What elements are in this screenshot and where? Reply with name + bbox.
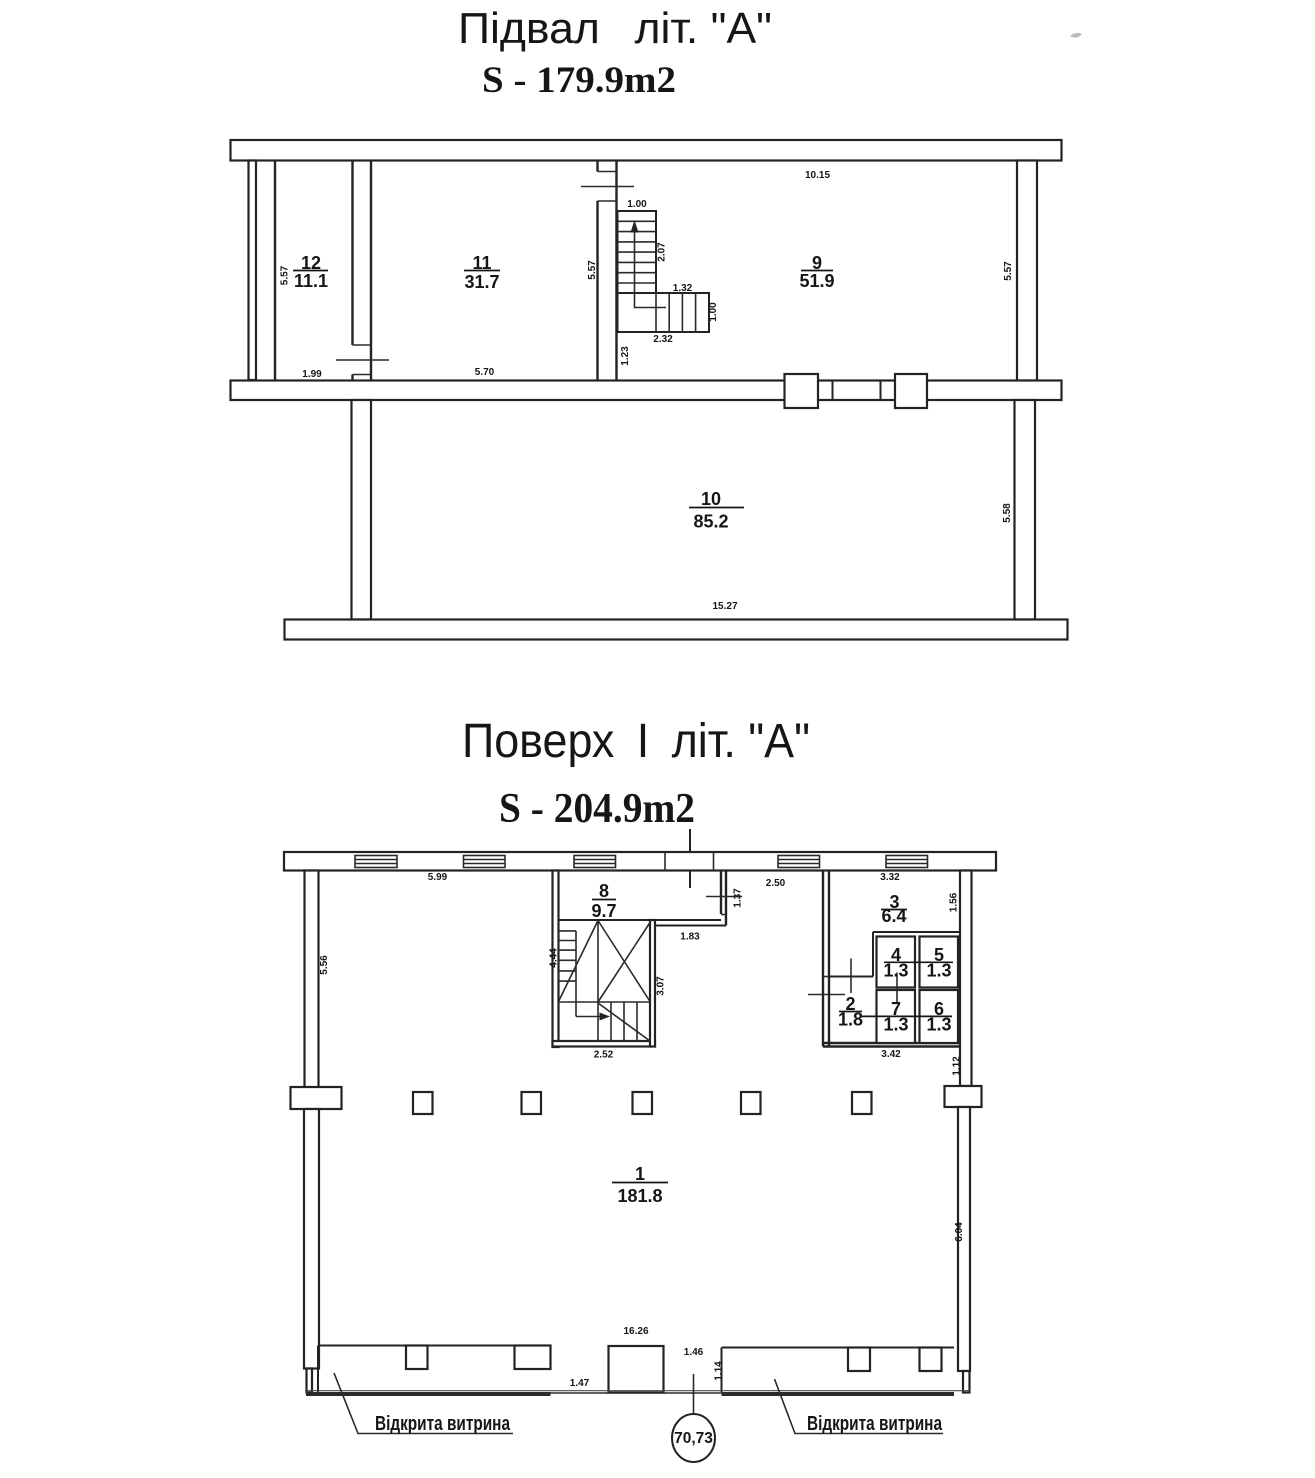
svg-text:70,73: 70,73 — [674, 1430, 713, 1447]
svg-text:5.57: 5.57 — [587, 260, 598, 280]
svg-text:1.3: 1.3 — [926, 961, 951, 981]
svg-text:Відкрита витрина: Відкрита витрина — [807, 1413, 943, 1435]
svg-text:2.07: 2.07 — [657, 242, 668, 262]
svg-text:1.3: 1.3 — [883, 1015, 908, 1035]
svg-text:Відкрита витрина: Відкрита витрина — [375, 1413, 511, 1435]
svg-text:10.15: 10.15 — [805, 170, 830, 181]
svg-text:1: 1 — [635, 1164, 645, 1184]
svg-text:1.8: 1.8 — [838, 1010, 863, 1030]
svg-text:1.99: 1.99 — [302, 369, 322, 380]
svg-text:9.7: 9.7 — [591, 901, 616, 921]
svg-text:1.56: 1.56 — [949, 892, 960, 912]
svg-text:1.00: 1.00 — [708, 302, 719, 322]
svg-text:181.8: 181.8 — [617, 1186, 662, 1206]
svg-text:1.14: 1.14 — [714, 1361, 725, 1381]
svg-text:15.27: 15.27 — [712, 601, 737, 612]
svg-text:2.52: 2.52 — [594, 1050, 614, 1061]
svg-text:Поверх І літ. "А": Поверх І літ. "А" — [462, 715, 810, 768]
svg-text:3.07: 3.07 — [656, 976, 667, 996]
svg-text:5.58: 5.58 — [1002, 503, 1013, 523]
svg-text:51.9: 51.9 — [799, 271, 834, 291]
svg-text:3.32: 3.32 — [880, 872, 900, 883]
svg-text:16.26: 16.26 — [623, 1326, 648, 1337]
svg-text:5.56: 5.56 — [319, 955, 330, 975]
svg-text:Підвал літ. "А": Підвал літ. "А" — [458, 4, 772, 53]
svg-text:1.3: 1.3 — [926, 1015, 951, 1035]
svg-text:6.4: 6.4 — [881, 906, 906, 926]
svg-text:1.23: 1.23 — [620, 346, 631, 366]
svg-text:11.1: 11.1 — [294, 271, 328, 291]
svg-text:S - 179.9m2: S - 179.9m2 — [482, 60, 676, 101]
svg-text:85.2: 85.2 — [693, 512, 728, 532]
svg-text:4.44: 4.44 — [549, 948, 560, 968]
svg-text:1.46: 1.46 — [684, 1347, 704, 1358]
svg-text:2.50: 2.50 — [766, 878, 786, 889]
svg-text:5.57: 5.57 — [1003, 261, 1014, 281]
svg-text:3.42: 3.42 — [881, 1049, 901, 1060]
svg-text:1.47: 1.47 — [570, 1378, 590, 1389]
svg-text:S - 204.9m2: S - 204.9m2 — [499, 786, 695, 832]
svg-text:1.37: 1.37 — [733, 888, 744, 908]
svg-text:2.32: 2.32 — [653, 334, 673, 345]
svg-text:5.57: 5.57 — [280, 265, 291, 285]
svg-text:31.7: 31.7 — [464, 272, 499, 292]
svg-text:5.70: 5.70 — [475, 367, 495, 378]
svg-text:1.00: 1.00 — [627, 199, 647, 210]
svg-text:1.3: 1.3 — [883, 961, 908, 981]
svg-text:1.12: 1.12 — [952, 1056, 963, 1076]
svg-text:10: 10 — [701, 489, 721, 509]
svg-text:5.99: 5.99 — [428, 872, 448, 883]
svg-text:6.04: 6.04 — [954, 1222, 965, 1242]
svg-text:8: 8 — [599, 881, 609, 901]
svg-text:1.32: 1.32 — [673, 283, 693, 294]
svg-text:1.83: 1.83 — [680, 932, 700, 943]
